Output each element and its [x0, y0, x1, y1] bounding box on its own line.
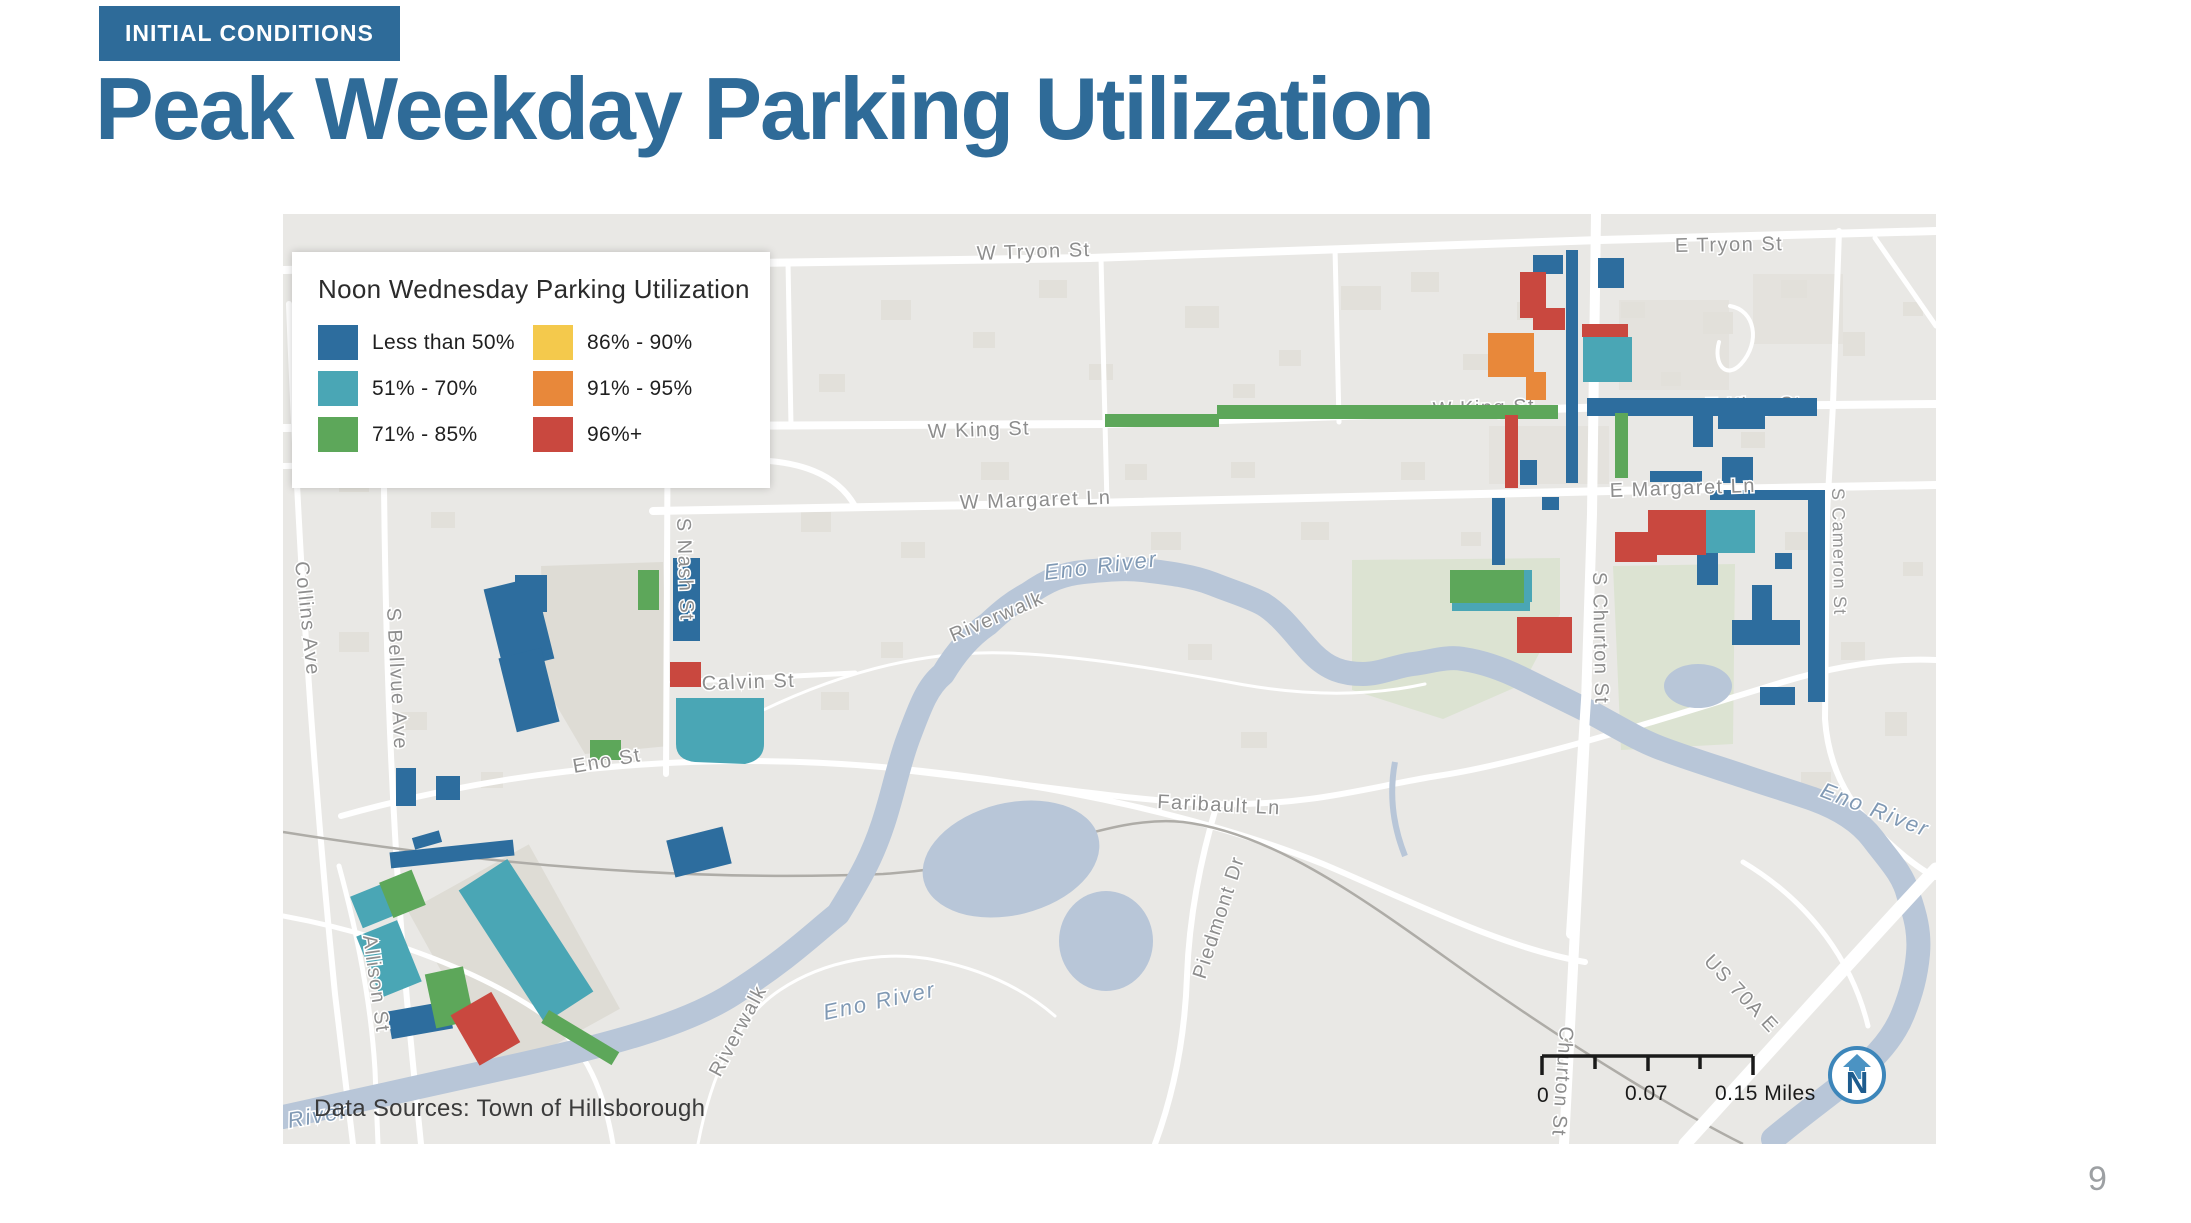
parking-lot: [1703, 510, 1755, 553]
parking-lot: [1542, 497, 1559, 510]
parking-lot: [1450, 570, 1524, 603]
parking-lot: [676, 698, 764, 764]
legend-swatch-96plus: [533, 417, 573, 452]
legend-label: 96%+: [587, 423, 643, 447]
parking-lot: [670, 662, 701, 687]
legend-label: 71% - 85%: [372, 423, 477, 447]
parking-lot: [1693, 413, 1713, 447]
parking-lot: [1615, 532, 1657, 562]
parking-lot: [1697, 552, 1718, 585]
parking-lot: [1520, 460, 1537, 485]
parking-lot: [1105, 414, 1219, 427]
section-badge: INITIAL CONDITIONS: [99, 6, 400, 61]
parking-lot: [1615, 413, 1628, 478]
north-arrow-letter: N: [1846, 1065, 1868, 1100]
parking-lot: [1452, 602, 1530, 611]
pond: [1059, 891, 1153, 991]
legend-label: 91% - 95%: [587, 377, 692, 401]
parking-lot: [1582, 324, 1628, 337]
parking-lot: [436, 776, 460, 800]
parking-lot: [1718, 416, 1765, 429]
legend-swatch-86-90: [533, 325, 573, 360]
legend-grid: Less than 50% 86% - 90% 51% - 70% 91% - …: [318, 325, 744, 452]
legend-label: 51% - 70%: [372, 377, 477, 401]
scale-start: 0: [1537, 1084, 1549, 1107]
scale-end: 0.15 Miles: [1715, 1082, 1816, 1105]
legend-label: Less than 50%: [372, 331, 515, 355]
parking-lot: [1505, 415, 1518, 488]
parking-lot: [1533, 308, 1565, 330]
legend-swatch-91-95: [533, 371, 573, 406]
legend-title: Noon Wednesday Parking Utilization: [318, 274, 744, 305]
label-s-nash-st: S Nash St: [672, 517, 698, 621]
parking-lot: [396, 768, 416, 806]
scale-mid: 0.07: [1625, 1082, 1668, 1105]
map-legend: Noon Wednesday Parking Utilization Less …: [292, 252, 770, 488]
label-w-king-st: W King St: [927, 417, 1030, 443]
parking-lot: [1533, 255, 1563, 274]
legend-swatch-71-85: [318, 417, 358, 452]
legend-item: 71% - 85%: [318, 417, 533, 452]
label-e-tryon-st: E Tryon St: [1675, 233, 1784, 257]
parking-lot: [1488, 333, 1534, 377]
parking-lot: [1598, 258, 1624, 288]
parking-lot: [1583, 337, 1632, 382]
parking-lot: [1492, 498, 1505, 565]
legend-swatch-51-70: [318, 371, 358, 406]
legend-item: 86% - 90%: [533, 325, 744, 360]
legend-item: 96%+: [533, 417, 744, 452]
label-s-cameron-st: S Cameron St: [1828, 488, 1850, 616]
parking-lot: [1517, 617, 1572, 653]
pond: [1664, 664, 1732, 708]
legend-swatch-lt50: [318, 325, 358, 360]
legend-item: 91% - 95%: [533, 371, 744, 406]
legend-label: 86% - 90%: [587, 331, 692, 355]
parking-lot: [1808, 490, 1825, 702]
parking-lot: [1566, 250, 1578, 483]
label-s-churton-st: S Churton St: [1588, 572, 1612, 705]
data-source-text: Data Sources: Town of Hillsborough: [314, 1095, 705, 1122]
parking-lot: [1760, 687, 1795, 705]
parking-lot: [1523, 570, 1532, 602]
legend-item: Less than 50%: [318, 325, 533, 360]
slide: INITIAL CONDITIONS Peak Weekday Parking …: [0, 0, 2191, 1223]
north-arrow: N: [1830, 1048, 1884, 1102]
legend-item: 51% - 70%: [318, 371, 533, 406]
label-w-tryon-st: W Tryon St: [976, 239, 1091, 265]
page-title: Peak Weekday Parking Utilization: [95, 58, 1433, 160]
page-number: 9: [2088, 1160, 2107, 1199]
parking-lot: [638, 570, 659, 610]
parking-lot: [515, 575, 547, 612]
parking-lot: [1526, 372, 1546, 400]
parking-lot: [1775, 553, 1792, 569]
label-calvin-st: Calvin St: [701, 670, 795, 695]
